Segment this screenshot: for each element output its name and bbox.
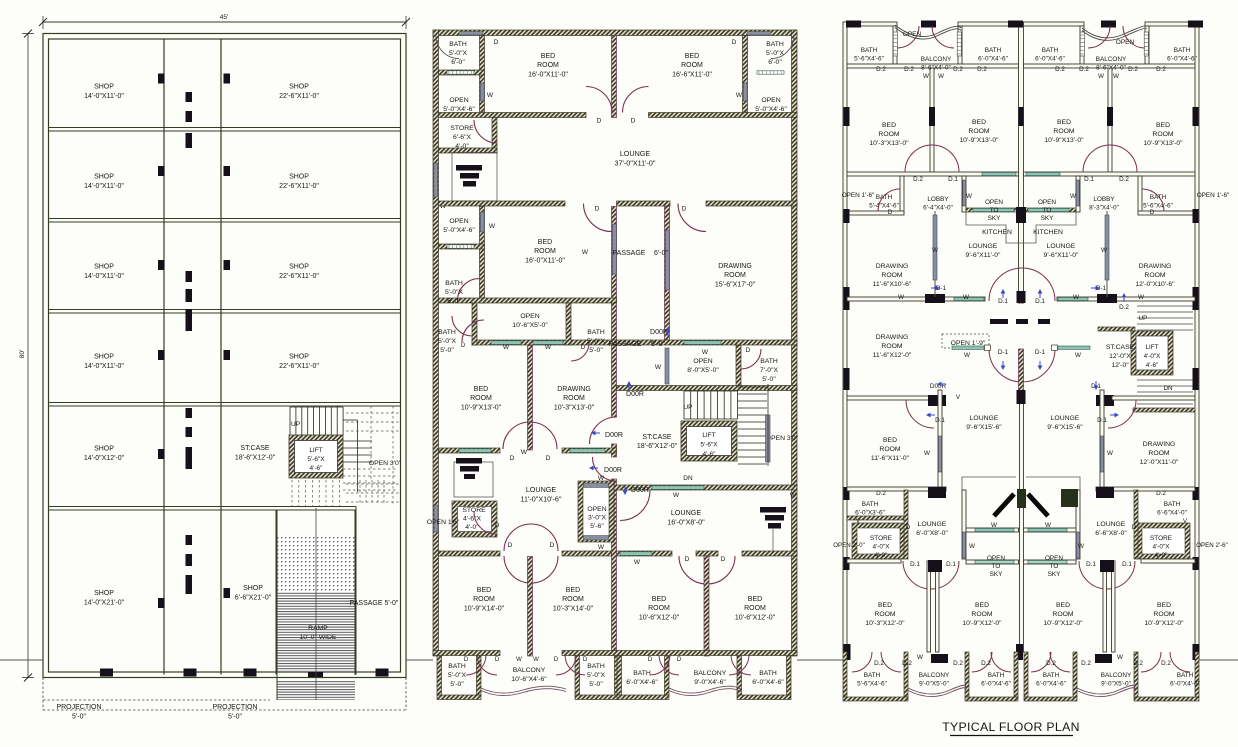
svg-text:D.1: D.1 [1086, 561, 1096, 568]
svg-text:6'-0"X8'-0": 6'-0"X8'-0" [916, 530, 948, 537]
svg-text:ROOM: ROOM [971, 611, 992, 618]
svg-text:BED: BED [748, 596, 762, 603]
svg-text:OPEN 1'-6": OPEN 1'-6" [842, 192, 875, 199]
svg-text:LOUNGE: LOUNGE [918, 521, 947, 528]
svg-text:6'-0"X4'-6": 6'-0"X4'-6" [752, 679, 784, 686]
svg-text:D00R: D00R [626, 391, 644, 398]
svg-text:9'-6"X15'-6": 9'-6"X15'-6" [1047, 424, 1083, 431]
svg-text:D.1: D.1 [1035, 298, 1045, 305]
svg-text:BATH: BATH [760, 358, 778, 365]
svg-text:10'-9"X13'-0": 10'-9"X13'-0" [1044, 137, 1084, 144]
svg-text:5'-4"X4'-6": 5'-4"X4'-6" [869, 203, 899, 210]
svg-text:10'-3"X12'-0": 10'-3"X12'-0" [865, 620, 905, 627]
svg-text:D: D [495, 657, 500, 663]
svg-text:10'-3"X13'-0": 10'-3"X13'-0" [869, 140, 909, 147]
svg-text:DRAWING: DRAWING [557, 386, 591, 393]
svg-text:BATH: BATH [438, 329, 456, 336]
svg-text:BATH: BATH [1042, 47, 1059, 54]
svg-text:BED: BED [882, 122, 896, 129]
svg-text:D: D [685, 556, 690, 563]
svg-text:12'-0": 12'-0" [1111, 362, 1129, 369]
svg-text:UP: UP [291, 421, 300, 428]
svg-text:UP: UP [683, 404, 692, 411]
svg-text:BATH: BATH [759, 670, 777, 677]
svg-text:OPEN: OPEN [449, 97, 468, 104]
svg-text:OPEN: OPEN [1045, 555, 1063, 562]
svg-text:LIFT: LIFT [702, 432, 715, 439]
svg-text:D.2: D.2 [1128, 66, 1138, 73]
svg-text:SHOP: SHOP [94, 174, 114, 181]
svg-text:5'-0"X: 5'-0"X [448, 672, 467, 679]
svg-text:D.2: D.2 [904, 66, 914, 73]
svg-text:4'-6"X: 4'-6"X [463, 516, 482, 523]
svg-text:8'-0"X5'-0": 8'-0"X5'-0" [687, 367, 719, 374]
svg-text:D.2: D.2 [913, 176, 923, 183]
svg-text:ROOM: ROOM [1148, 450, 1169, 457]
svg-text:22'-6"X11'-0": 22'-6"X11'-0" [279, 273, 319, 280]
svg-text:SKY: SKY [1048, 571, 1062, 578]
svg-text:10'-9"X13'-0": 10'-9"X13'-0" [461, 404, 502, 411]
svg-text:RAMP: RAMP [308, 625, 328, 632]
svg-text:D.1: D.1 [948, 176, 958, 183]
svg-text:W: W [487, 92, 494, 99]
svg-text:OPEN 1'6": OPEN 1'6" [427, 519, 460, 526]
svg-text:5'-0": 5'-0" [589, 681, 603, 688]
svg-text:D: D [461, 343, 466, 349]
svg-text:14'-0"X11'-0": 14'-0"X11'-0" [84, 363, 124, 370]
svg-text:5'-0": 5'-0" [450, 681, 464, 688]
svg-text:W: W [598, 475, 605, 482]
svg-text:ROOM: ROOM [1052, 611, 1073, 618]
svg-text:OPEN 3'0": OPEN 3'0" [369, 460, 402, 467]
svg-text:V: V [1183, 519, 1187, 525]
svg-text:D.1: D.1 [935, 417, 945, 424]
svg-text:OPEN: OPEN [693, 358, 712, 365]
svg-text:18'-6"X12'-0": 18'-6"X12'-0" [235, 455, 276, 462]
svg-text:BATH: BATH [766, 41, 784, 48]
svg-text:6'-6"X21'-0": 6'-6"X21'-0" [235, 595, 272, 602]
svg-text:16'-0"X11'-0": 16'-0"X11'-0" [528, 71, 568, 78]
svg-text:SHOP: SHOP [289, 264, 309, 271]
svg-text:OPEN 3'0": OPEN 3'0" [766, 435, 799, 442]
svg-text:D.2: D.2 [1161, 660, 1171, 667]
svg-text:ROOM: ROOM [1153, 611, 1174, 618]
svg-text:OPEN 2'-0": OPEN 2'-0" [833, 542, 865, 549]
svg-text:D: D [888, 209, 893, 216]
svg-text:BED: BED [1056, 602, 1070, 609]
svg-text:BED: BED [878, 602, 892, 609]
svg-text:4'-0"X: 4'-0"X [1153, 544, 1171, 551]
svg-text:W: W [938, 73, 944, 80]
svg-text:D: D [495, 522, 500, 529]
svg-text:BALCONY: BALCONY [1101, 672, 1132, 679]
svg-text:ROOM: ROOM [881, 272, 902, 279]
svg-text:8'-6"X4'-0": 8'-6"X4'-0" [921, 65, 951, 72]
svg-text:12'-0"X11'-0": 12'-0"X11'-0" [1140, 459, 1179, 466]
svg-text:10'-9"X12'-0": 10'-9"X12'-0" [962, 620, 1002, 627]
svg-text:SHOP: SHOP [94, 264, 114, 271]
svg-text:ROOM: ROOM [881, 343, 902, 350]
svg-text:22'-6"X11'-0": 22'-6"X11'-0" [279, 183, 319, 190]
svg-text:9'-0"X5'-0": 9'-0"X5'-0" [919, 681, 949, 688]
svg-text:DRAWING: DRAWING [1139, 263, 1172, 270]
svg-text:5'-0": 5'-0" [228, 714, 242, 721]
svg-text:W: W [634, 559, 641, 566]
svg-text:KITCHEN: KITCHEN [982, 229, 1012, 236]
svg-text:5'-6"X: 5'-6"X [307, 456, 325, 463]
svg-text:BATH: BATH [861, 47, 878, 54]
svg-text:BED: BED [538, 239, 552, 246]
svg-text:W: W [673, 492, 680, 499]
svg-text:D.1: D.1 [998, 298, 1008, 305]
svg-text:BED: BED [1057, 119, 1071, 126]
svg-text:6'-6"X8'-0": 6'-6"X8'-0" [1095, 530, 1127, 537]
svg-text:SHOP: SHOP [94, 84, 114, 91]
svg-text:6'-0": 6'-0" [768, 59, 782, 66]
svg-text:LIFT: LIFT [309, 447, 322, 454]
svg-text:TYPICAL FLOOR PLAN: TYPICAL FLOOR PLAN [942, 720, 1080, 734]
svg-text:6'-0": 6'-0" [651, 341, 665, 348]
svg-text:ROOM: ROOM [879, 446, 900, 453]
svg-text:14'-0"X11'-0": 14'-0"X11'-0" [84, 183, 124, 190]
svg-text:6'-6"X: 6'-6"X [453, 134, 472, 141]
svg-text:LOUNGE: LOUNGE [1047, 243, 1076, 250]
svg-text:12'-0"X: 12'-0"X [1109, 353, 1131, 360]
svg-text:D.2: D.2 [977, 66, 987, 73]
svg-text:W: W [736, 92, 743, 99]
svg-text:ROOM: ROOM [473, 596, 495, 603]
svg-text:D.2: D.2 [1119, 304, 1129, 311]
svg-text:6'-0": 6'-0" [654, 250, 668, 257]
svg-text:D-1: D-1 [1035, 349, 1046, 356]
svg-text:ROOM: ROOM [562, 596, 584, 603]
svg-text:ROOM: ROOM [537, 62, 559, 69]
svg-text:4'-0": 4'-0" [875, 552, 888, 559]
svg-text:W: W [932, 247, 938, 254]
svg-text:W: W [655, 364, 662, 371]
svg-text:6'-0": 6'-0" [451, 59, 465, 66]
svg-text:SHOP: SHOP [289, 354, 309, 361]
svg-text:BALCONY: BALCONY [513, 667, 546, 674]
svg-text:BATH: BATH [445, 280, 463, 287]
svg-text:LOUNGE: LOUNGE [1051, 415, 1080, 422]
svg-text:W: W [1101, 247, 1107, 254]
svg-text:D.2: D.2 [1119, 176, 1129, 183]
svg-text:W: W [582, 249, 589, 256]
svg-text:4'-6": 4'-6" [310, 465, 324, 472]
svg-text:W: W [991, 522, 997, 529]
svg-text:BED: BED [975, 602, 989, 609]
svg-text:BATH: BATH [1174, 47, 1191, 54]
svg-text:LOUNGE: LOUNGE [969, 243, 998, 250]
svg-text:ROOM: ROOM [1152, 131, 1173, 138]
svg-text:PASSAGE: PASSAGE [609, 341, 642, 348]
svg-text:BATH: BATH [1164, 501, 1181, 508]
svg-text:ROOM: ROOM [534, 248, 556, 255]
svg-text:D.2: D.2 [1156, 490, 1166, 497]
svg-text:6'-4"X4'-0": 6'-4"X4'-0" [923, 205, 953, 212]
svg-text:7'-0"X: 7'-0"X [760, 367, 779, 374]
svg-text:D: D [494, 39, 499, 46]
svg-text:D: D [595, 206, 600, 213]
svg-text:ROOM: ROOM [724, 272, 746, 279]
svg-text:BATH: BATH [1177, 672, 1194, 679]
svg-text:9'-6"X11'-0": 9'-6"X11'-0" [1044, 252, 1079, 259]
svg-text:D.2: D.2 [874, 660, 884, 667]
svg-text:D: D [554, 657, 559, 663]
svg-text:W: W [1107, 450, 1113, 457]
svg-text:OPEN: OPEN [1116, 39, 1135, 46]
svg-text:SKY: SKY [990, 571, 1004, 578]
svg-text:4'-6": 4'-6" [1146, 362, 1159, 369]
svg-text:10'-6"X12'-0": 10'-6"X12'-0" [639, 614, 680, 621]
svg-text:W: W [702, 349, 709, 356]
svg-text:D: D [597, 118, 602, 125]
svg-text:W: W [598, 544, 605, 551]
svg-text:D.2: D.2 [1055, 66, 1065, 73]
svg-text:BATH: BATH [864, 672, 881, 679]
svg-text:D: D [746, 347, 751, 354]
svg-text:ROOM: ROOM [878, 131, 899, 138]
svg-text:D00R: D00R [650, 329, 668, 336]
svg-text:80': 80' [19, 350, 26, 358]
svg-text:BATH: BATH [985, 47, 1002, 54]
svg-text:10'-9"X12'-0": 10'-9"X12'-0" [1043, 620, 1083, 627]
svg-text:PROJECTION: PROJECTION [212, 704, 257, 711]
svg-text:D: D [631, 118, 636, 125]
svg-text:BED: BED [652, 596, 666, 603]
svg-text:ST:CASE: ST:CASE [642, 434, 672, 441]
svg-text:6'-0"X4'-6": 6'-0"X4'-6" [1036, 681, 1066, 688]
svg-text:11'-6"X12'-0": 11'-6"X12'-0" [873, 352, 912, 359]
svg-text:W: W [898, 294, 904, 301]
svg-text:D.2: D.2 [1156, 66, 1166, 73]
svg-text:9'-0"X5'-0": 9'-0"X5'-0" [1101, 681, 1131, 688]
svg-text:PROJECTION: PROJECTION [56, 704, 101, 711]
svg-text:37'-0"X11'-0": 37'-0"X11'-0" [615, 158, 656, 167]
svg-text:D.2: D.2 [1133, 660, 1143, 667]
svg-text:18'-6"X12'-0": 18'-6"X12'-0" [637, 443, 678, 450]
svg-text:10'-6"X5'-0": 10'-6"X5'-0" [512, 322, 548, 329]
svg-text:DRAWING: DRAWING [876, 334, 909, 341]
svg-text:STORE: STORE [450, 125, 474, 132]
svg-text:ROOM: ROOM [874, 611, 895, 618]
svg-text:LIFT: LIFT [1146, 344, 1159, 351]
svg-text:10'-3"X13'-0": 10'-3"X13'-0" [554, 404, 595, 411]
svg-text:10'-3"X14'-0": 10'-3"X14'-0" [553, 605, 594, 612]
svg-text:D.1: D.1 [1097, 417, 1107, 424]
svg-text:OPEN: OPEN [761, 97, 780, 104]
svg-text:BED: BED [1157, 602, 1171, 609]
svg-text:W: W [1075, 352, 1081, 359]
svg-text:D: D [1132, 524, 1137, 531]
svg-text:ROOM: ROOM [681, 62, 703, 69]
svg-text:D: D [648, 657, 653, 663]
svg-text:OPEN: OPEN [985, 199, 1003, 206]
svg-text:UP: UP [1139, 315, 1148, 322]
svg-text:BATH: BATH [862, 501, 879, 508]
svg-text:D: D [677, 657, 682, 663]
svg-text:LOUNGE: LOUNGE [671, 508, 702, 517]
svg-text:BED: BED [972, 119, 986, 126]
svg-text:W: W [1073, 294, 1079, 301]
svg-text:6'-0"X4'-6": 6'-0"X4'-6" [1170, 681, 1200, 688]
svg-text:BALCONY: BALCONY [919, 672, 950, 679]
svg-text:D00R: D00R [605, 432, 623, 439]
svg-text:D.2: D.2 [876, 66, 886, 73]
svg-text:5'-0": 5'-0" [762, 376, 776, 383]
svg-text:5'-0"X: 5'-0"X [766, 50, 785, 57]
svg-text:OPEN: OPEN [587, 506, 606, 513]
svg-text:3'-0"X: 3'-0"X [588, 515, 607, 522]
svg-text:D.2: D.2 [953, 660, 963, 667]
svg-text:D.2: D.2 [953, 66, 963, 73]
svg-text:OPEN: OPEN [449, 218, 468, 225]
svg-text:SHOP: SHOP [94, 446, 114, 453]
svg-text:16'-0"X8'-0": 16'-0"X8'-0" [667, 517, 705, 526]
svg-text:11'-0"X10'-6": 11'-0"X10'-6" [521, 494, 562, 503]
svg-text:STORE: STORE [1150, 535, 1172, 542]
svg-text:W: W [521, 449, 528, 456]
svg-text:W: W [1045, 522, 1051, 529]
svg-text:OPEN: OPEN [520, 313, 539, 320]
svg-text:STORE: STORE [870, 535, 892, 542]
svg-text:5'-6"X4'-6": 5'-6"X4'-6" [854, 56, 884, 63]
svg-text:D-1: D-1 [998, 349, 1009, 356]
svg-text:OPEN 2'-6": OPEN 2'-6" [1196, 542, 1228, 549]
svg-text:4'-6": 4'-6" [703, 451, 717, 458]
svg-text:22'-6"X11'-0": 22'-6"X11'-0" [279, 363, 319, 370]
svg-text:10'-0" WIDE: 10'-0" WIDE [300, 634, 337, 641]
svg-text:D.1: D.1 [946, 561, 956, 568]
svg-text:5'-0"X: 5'-0"X [438, 338, 457, 345]
svg-text:8'-6"X4'-0": 8'-6"X4'-0" [1096, 65, 1126, 72]
svg-text:W: W [545, 344, 552, 351]
svg-text:TO: TO [1043, 207, 1052, 214]
svg-text:4'-0": 4'-0" [1155, 552, 1168, 559]
svg-text:ST:CASE: ST:CASE [240, 445, 270, 452]
svg-text:10'-9"X14'-0": 10'-9"X14'-0" [464, 605, 505, 612]
svg-text:DRAWING: DRAWING [876, 263, 909, 270]
svg-text:SHOP: SHOP [94, 590, 114, 597]
svg-text:5'-0": 5'-0" [440, 347, 454, 354]
svg-text:BALCONY: BALCONY [921, 56, 952, 63]
svg-text:BATH: BATH [1150, 194, 1167, 201]
svg-text:5'-0": 5'-0" [72, 714, 86, 721]
svg-text:16'-6"X11'-0": 16'-6"X11'-0" [672, 71, 712, 78]
svg-text:4'-0": 4'-0" [455, 143, 469, 150]
svg-text:6'-0"X4'-6": 6'-0"X4'-6" [981, 681, 1011, 688]
svg-text:W: W [966, 193, 972, 200]
svg-text:D.1: D.1 [1084, 176, 1094, 183]
svg-text:BED: BED [1156, 122, 1170, 129]
svg-text:DRAWING: DRAWING [1143, 441, 1176, 448]
svg-text:BED: BED [883, 437, 897, 444]
svg-text:5'-6": 5'-6" [590, 523, 604, 530]
svg-text:11'-6"X10'-6": 11'-6"X10'-6" [873, 281, 912, 288]
svg-text:D: D [732, 39, 737, 46]
svg-text:D: D [510, 455, 515, 462]
svg-text:6'-0"X4'-6": 6'-0"X4'-6" [626, 679, 658, 686]
svg-text:5'-6"X4'-6": 5'-6"X4'-6" [857, 681, 887, 688]
svg-text:10'-9"X13'-0": 10'-9"X13'-0" [959, 137, 999, 144]
svg-text:5'-0"X: 5'-0"X [445, 289, 464, 296]
svg-text:BED: BED [541, 53, 555, 60]
svg-text:DN: DN [683, 475, 693, 482]
svg-text:6'-0"X3'-6": 6'-0"X3'-6" [855, 510, 885, 517]
svg-text:6'-0"X4'-6": 6'-0"X4'-6" [978, 56, 1008, 63]
svg-text:W: W [533, 657, 539, 663]
svg-text:14'-0"X11'-0": 14'-0"X11'-0" [84, 273, 124, 280]
svg-text:BATH: BATH [449, 41, 467, 48]
svg-text:14'-0"X21'-0": 14'-0"X21'-0" [84, 600, 125, 607]
svg-text:W: W [917, 654, 923, 661]
svg-text:LOUNGE: LOUNGE [526, 485, 557, 494]
svg-text:5'-0"X: 5'-0"X [449, 50, 468, 57]
svg-text:W: W [790, 492, 797, 499]
svg-text:PASSAGE 5'-0": PASSAGE 5'-0" [350, 600, 399, 607]
svg-text:D: D [508, 542, 513, 549]
svg-text:LOUNGE: LOUNGE [620, 149, 651, 158]
svg-text:SKY: SKY [988, 215, 1002, 222]
svg-text:W: W [503, 344, 510, 351]
svg-text:6'-6"X4'-0": 6'-6"X4'-0" [1157, 510, 1187, 517]
svg-text:BATH: BATH [988, 672, 1005, 679]
svg-text:10'-6"X12'-0": 10'-6"X12'-0" [735, 614, 776, 621]
svg-text:12'-0"X10'-6": 12'-0"X10'-6" [1135, 281, 1175, 288]
svg-text:22'-6"X11'-0": 22'-6"X11'-0" [279, 93, 319, 100]
svg-text:W: W [1098, 73, 1104, 80]
svg-text:6'-0": 6'-0" [447, 298, 461, 305]
svg-text:6'-0"X4'-6": 6'-0"X4'-6" [1035, 56, 1065, 63]
svg-text:KITCHEN: KITCHEN [1033, 229, 1063, 236]
svg-text:W: W [969, 543, 975, 550]
svg-text:D: D [1150, 209, 1155, 216]
svg-text:9'-6"X11'-0": 9'-6"X11'-0" [966, 252, 1001, 259]
svg-text:OPEN: OPEN [987, 555, 1005, 562]
svg-text:BALCONY: BALCONY [1096, 56, 1127, 63]
svg-text:TO: TO [992, 563, 1001, 570]
svg-text:LOBBY: LOBBY [927, 196, 949, 203]
svg-text:LOBBY: LOBBY [1093, 196, 1115, 203]
svg-text:W: W [516, 657, 522, 663]
svg-text:15'-6"X17'-0": 15'-6"X17'-0" [715, 281, 756, 288]
svg-text:W: W [923, 73, 929, 80]
svg-text:45': 45' [220, 14, 228, 21]
svg-text:D.1: D.1 [1122, 561, 1132, 568]
svg-text:4'-0": 4'-0" [465, 524, 479, 531]
svg-text:16'-0"X11'-0": 16'-0"X11'-0" [525, 257, 565, 264]
svg-text:BALCONY: BALCONY [694, 670, 727, 677]
svg-text:5'-0"X4'-6": 5'-0"X4'-6" [755, 106, 787, 113]
svg-text:BATH: BATH [1043, 672, 1060, 679]
svg-text:SHOP: SHOP [289, 174, 309, 181]
svg-text:W: W [1070, 193, 1076, 200]
svg-text:V: V [856, 519, 860, 525]
svg-text:ROOM: ROOM [1053, 128, 1074, 135]
svg-text:W: W [1117, 654, 1123, 661]
svg-text:9'-0"X4'-6": 9'-0"X4'-6" [694, 679, 726, 686]
svg-text:BATH: BATH [587, 663, 605, 670]
svg-text:W: W [963, 294, 969, 301]
svg-text:W: W [1078, 543, 1084, 550]
svg-text:SHOP: SHOP [243, 585, 263, 592]
svg-text:5'-0": 5'-0" [589, 347, 603, 354]
svg-text:10'-6"X4'-6": 10'-6"X4'-6" [511, 676, 547, 683]
svg-text:14'-0"X12'-0": 14'-0"X12'-0" [84, 455, 125, 462]
svg-text:PASSAGE: PASSAGE [613, 250, 646, 257]
svg-text:D: D [546, 455, 551, 462]
